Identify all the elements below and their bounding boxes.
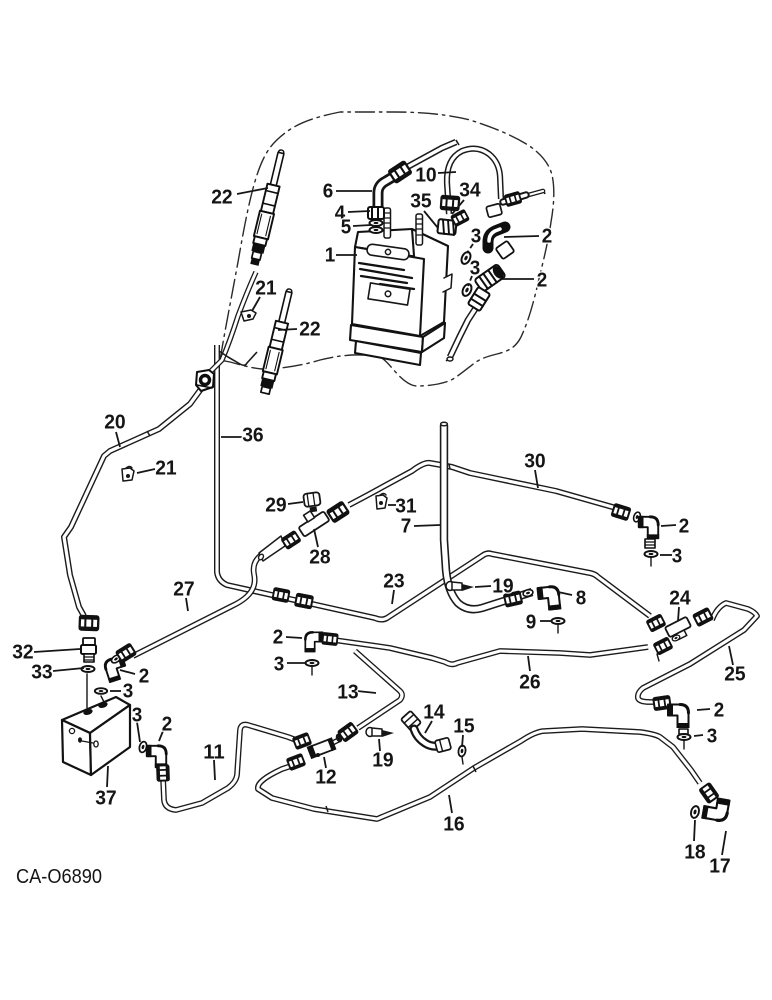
svg-text:3: 3 xyxy=(471,224,482,247)
svg-text:2: 2 xyxy=(714,698,725,721)
svg-text:CA-O6890: CA-O6890 xyxy=(16,866,102,888)
svg-text:22: 22 xyxy=(299,317,321,340)
svg-text:2: 2 xyxy=(273,625,284,648)
svg-text:2: 2 xyxy=(542,224,553,247)
svg-text:33: 33 xyxy=(31,660,53,683)
svg-text:30: 30 xyxy=(524,449,546,472)
svg-text:2: 2 xyxy=(537,268,548,291)
svg-text:28: 28 xyxy=(309,545,331,568)
svg-text:3: 3 xyxy=(274,652,285,675)
svg-text:10: 10 xyxy=(415,163,437,186)
svg-text:24: 24 xyxy=(669,586,691,609)
svg-text:18: 18 xyxy=(684,840,706,863)
svg-text:3: 3 xyxy=(123,679,134,702)
svg-text:26: 26 xyxy=(519,670,541,693)
svg-text:3: 3 xyxy=(707,724,718,747)
svg-text:23: 23 xyxy=(383,569,405,592)
svg-text:22: 22 xyxy=(211,185,233,208)
svg-text:19: 19 xyxy=(372,748,394,771)
svg-text:15: 15 xyxy=(453,714,475,737)
svg-text:17: 17 xyxy=(709,854,731,877)
svg-text:12: 12 xyxy=(315,765,337,788)
svg-text:25: 25 xyxy=(724,662,746,685)
svg-text:1: 1 xyxy=(325,243,336,266)
svg-text:11: 11 xyxy=(203,740,225,763)
svg-text:7: 7 xyxy=(401,514,412,537)
svg-text:35: 35 xyxy=(410,189,432,212)
svg-text:3: 3 xyxy=(132,703,143,726)
svg-text:27: 27 xyxy=(173,577,195,600)
svg-text:16: 16 xyxy=(443,812,465,835)
svg-text:19: 19 xyxy=(492,574,514,597)
svg-text:3: 3 xyxy=(470,256,481,279)
svg-text:13: 13 xyxy=(337,680,359,703)
svg-text:37: 37 xyxy=(95,786,117,809)
svg-text:5: 5 xyxy=(341,215,352,238)
svg-text:3: 3 xyxy=(672,544,683,567)
svg-text:34: 34 xyxy=(459,178,481,201)
svg-text:36: 36 xyxy=(242,423,264,446)
svg-text:21: 21 xyxy=(255,276,277,299)
svg-text:21: 21 xyxy=(155,456,177,479)
svg-text:2: 2 xyxy=(139,664,150,687)
svg-text:9: 9 xyxy=(526,610,537,633)
svg-text:8: 8 xyxy=(576,586,587,609)
svg-text:20: 20 xyxy=(104,410,126,433)
svg-text:29: 29 xyxy=(265,493,287,516)
svg-text:6: 6 xyxy=(323,179,334,202)
svg-text:2: 2 xyxy=(162,712,173,735)
svg-text:14: 14 xyxy=(423,700,445,723)
svg-text:2: 2 xyxy=(679,514,690,537)
